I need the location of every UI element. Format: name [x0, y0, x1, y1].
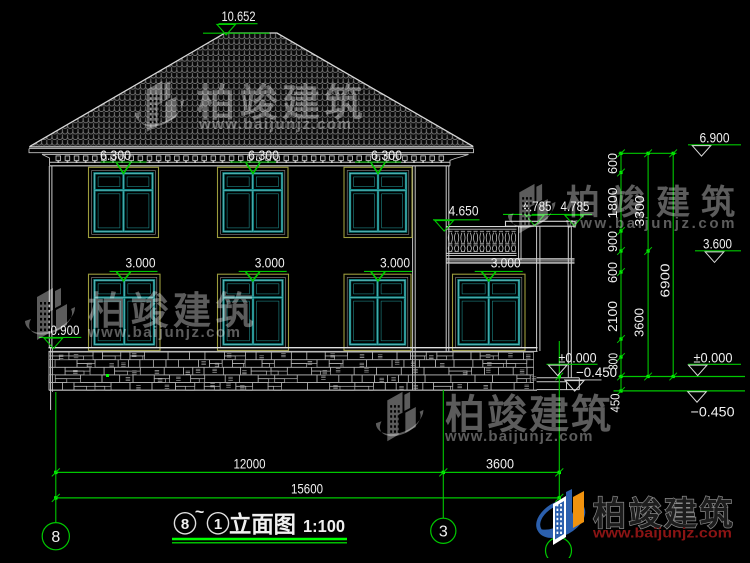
svg-text:6.300: 6.300 — [371, 147, 402, 163]
svg-text:3: 3 — [439, 523, 448, 540]
svg-text:~: ~ — [195, 504, 204, 521]
svg-text:−0.450: −0.450 — [691, 404, 735, 420]
svg-text:10.652: 10.652 — [222, 8, 256, 24]
svg-text:3.000: 3.000 — [380, 254, 410, 270]
svg-text:1: 1 — [214, 516, 222, 533]
svg-text:900: 900 — [606, 231, 620, 252]
svg-text:6.900: 6.900 — [700, 130, 730, 146]
svg-text:2100: 2100 — [606, 301, 620, 332]
svg-text:3600: 3600 — [633, 308, 647, 337]
svg-text:4.650: 4.650 — [449, 203, 479, 219]
svg-text:6.300: 6.300 — [100, 147, 131, 163]
svg-text:15600: 15600 — [291, 481, 323, 497]
svg-text:8: 8 — [51, 529, 60, 546]
svg-text:600: 600 — [606, 262, 620, 283]
svg-text:3.000: 3.000 — [126, 254, 156, 270]
svg-text:±0.000: ±0.000 — [694, 349, 733, 365]
svg-text:12000: 12000 — [234, 455, 266, 471]
svg-text:3.000: 3.000 — [255, 254, 285, 270]
svg-text:6.300: 6.300 — [248, 147, 279, 163]
svg-text:−0.450: −0.450 — [576, 364, 617, 380]
svg-text:立面图: 立面图 — [229, 511, 296, 537]
svg-text:www.baijunjz.com: www.baijunjz.com — [87, 324, 241, 341]
svg-text:3.000: 3.000 — [491, 254, 521, 270]
svg-text:6900: 6900 — [659, 263, 673, 297]
svg-text:www.baijunjz.com: www.baijunjz.com — [198, 116, 352, 133]
svg-text:1:100: 1:100 — [303, 516, 345, 536]
svg-text:3600: 3600 — [486, 455, 514, 471]
svg-text:www.baijunjz.com: www.baijunjz.com — [565, 215, 737, 232]
svg-text:3.600: 3.600 — [703, 236, 732, 252]
svg-text:www.baijunjz.com: www.baijunjz.com — [444, 428, 594, 445]
svg-text:www.baijunjz.com: www.baijunjz.com — [592, 525, 732, 541]
svg-text:600: 600 — [606, 153, 620, 174]
svg-text:8: 8 — [181, 516, 189, 533]
